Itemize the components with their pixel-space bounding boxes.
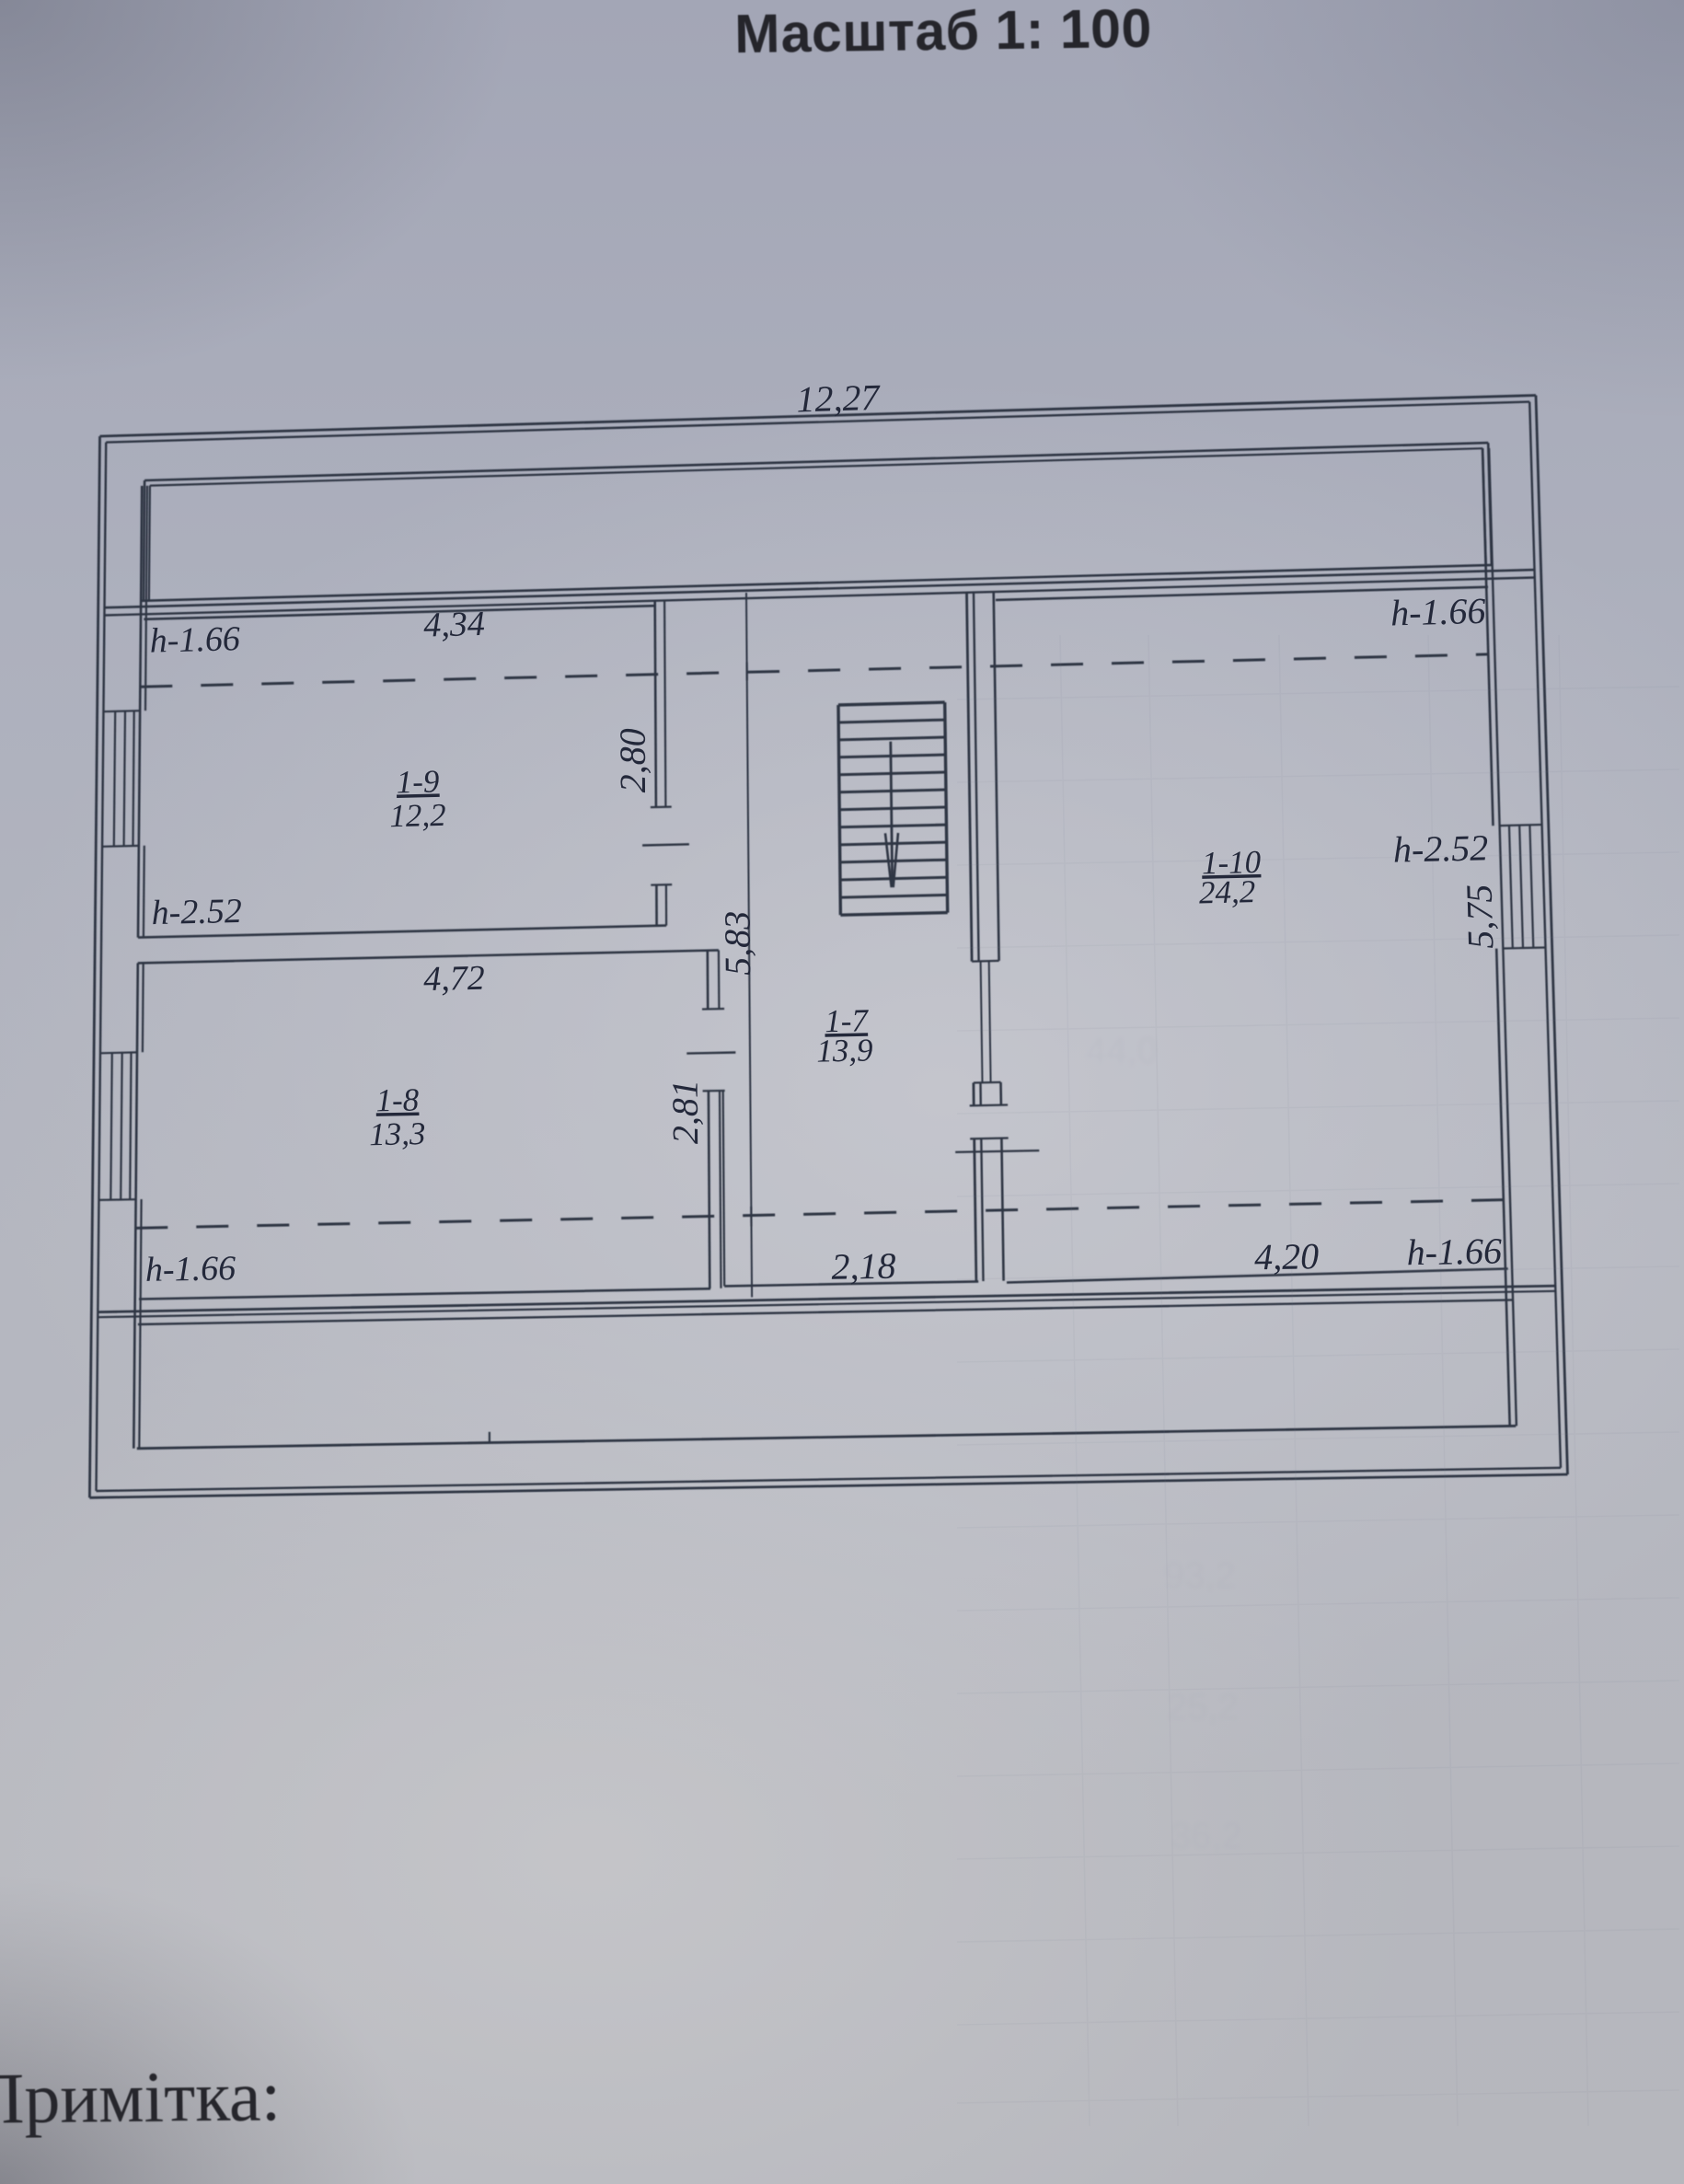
svg-text:24,2: 24,2 — [1199, 873, 1256, 910]
svg-text:h-2.52: h-2.52 — [1392, 826, 1488, 870]
svg-text:5,75: 5,75 — [1459, 884, 1502, 949]
svg-text:2,18: 2,18 — [831, 1245, 896, 1288]
svg-text:2,80: 2,80 — [612, 728, 653, 792]
svg-text:h-2.52: h-2.52 — [151, 892, 242, 932]
svg-text:4,34: 4,34 — [423, 605, 486, 645]
svg-text:36,2: 36,2 — [1171, 1816, 1242, 1856]
svg-text:1-9: 1-9 — [396, 763, 440, 800]
svg-text:12,27: 12,27 — [796, 376, 882, 421]
svg-text:h-1.66: h-1.66 — [145, 1249, 236, 1289]
svg-text:1-8: 1-8 — [375, 1081, 420, 1118]
svg-text:h-1.66: h-1.66 — [149, 619, 240, 661]
svg-text:44,0: 44,0 — [1086, 1031, 1158, 1071]
svg-text:4,20: 4,20 — [1254, 1235, 1320, 1277]
svg-text:5,83: 5,83 — [717, 911, 759, 976]
svg-text:2,81: 2,81 — [664, 1080, 706, 1144]
svg-text:h-1.66: h-1.66 — [1406, 1230, 1502, 1273]
svg-text:93,2: 93,2 — [1164, 1555, 1236, 1596]
svg-text:4,72: 4,72 — [423, 959, 485, 999]
svg-text:13,3: 13,3 — [369, 1115, 426, 1152]
svg-text:13,9: 13,9 — [816, 1032, 873, 1069]
svg-text:h-1.66: h-1.66 — [1390, 590, 1486, 634]
svg-text:12,2: 12,2 — [389, 797, 446, 834]
svg-text:25,2: 25,2 — [1167, 1687, 1239, 1728]
